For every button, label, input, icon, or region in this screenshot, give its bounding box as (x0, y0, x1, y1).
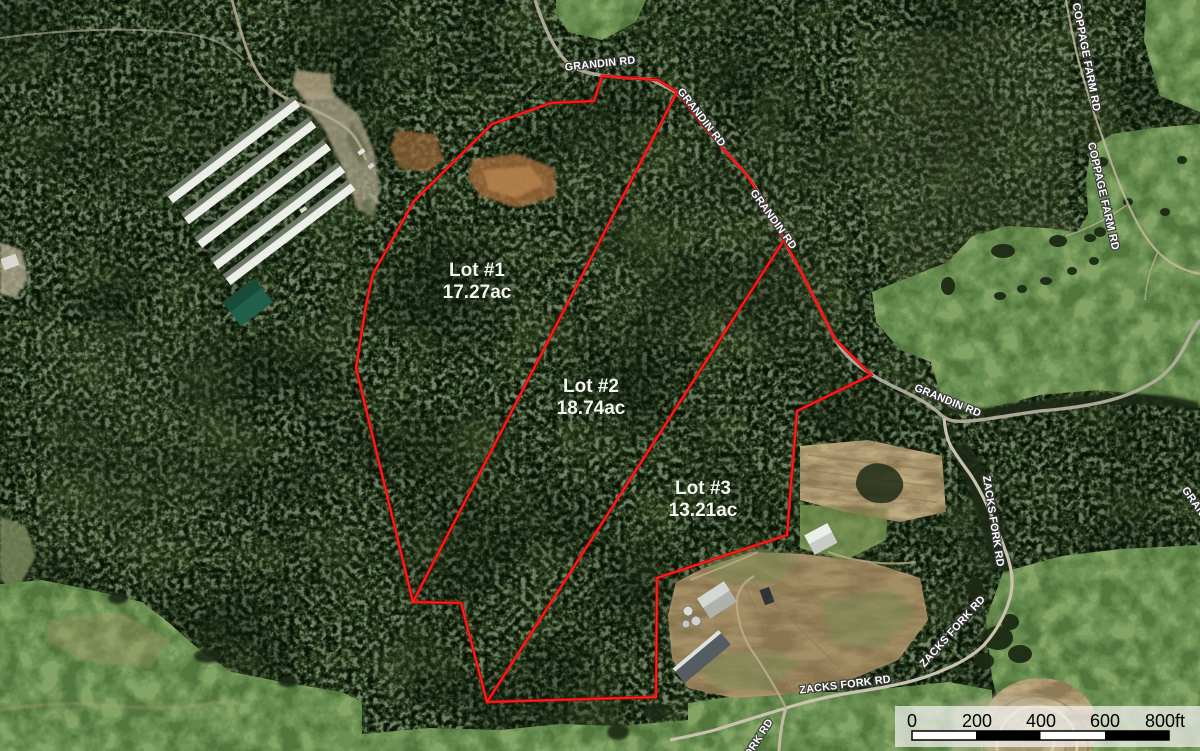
svg-text:13.21ac: 13.21ac (669, 500, 738, 521)
svg-text:800ft: 800ft (1145, 711, 1185, 731)
svg-text:200: 200 (962, 711, 992, 731)
svg-text:400: 400 (1026, 711, 1056, 731)
svg-text:18.74ac: 18.74ac (557, 398, 626, 419)
svg-text:0: 0 (907, 711, 917, 731)
svg-text:17.27ac: 17.27ac (443, 282, 512, 303)
svg-text:Lot #2: Lot #2 (563, 376, 619, 397)
svg-text:Lot #1: Lot #1 (449, 260, 505, 281)
svg-text:600: 600 (1090, 711, 1120, 731)
svg-text:Lot #3: Lot #3 (675, 478, 731, 499)
